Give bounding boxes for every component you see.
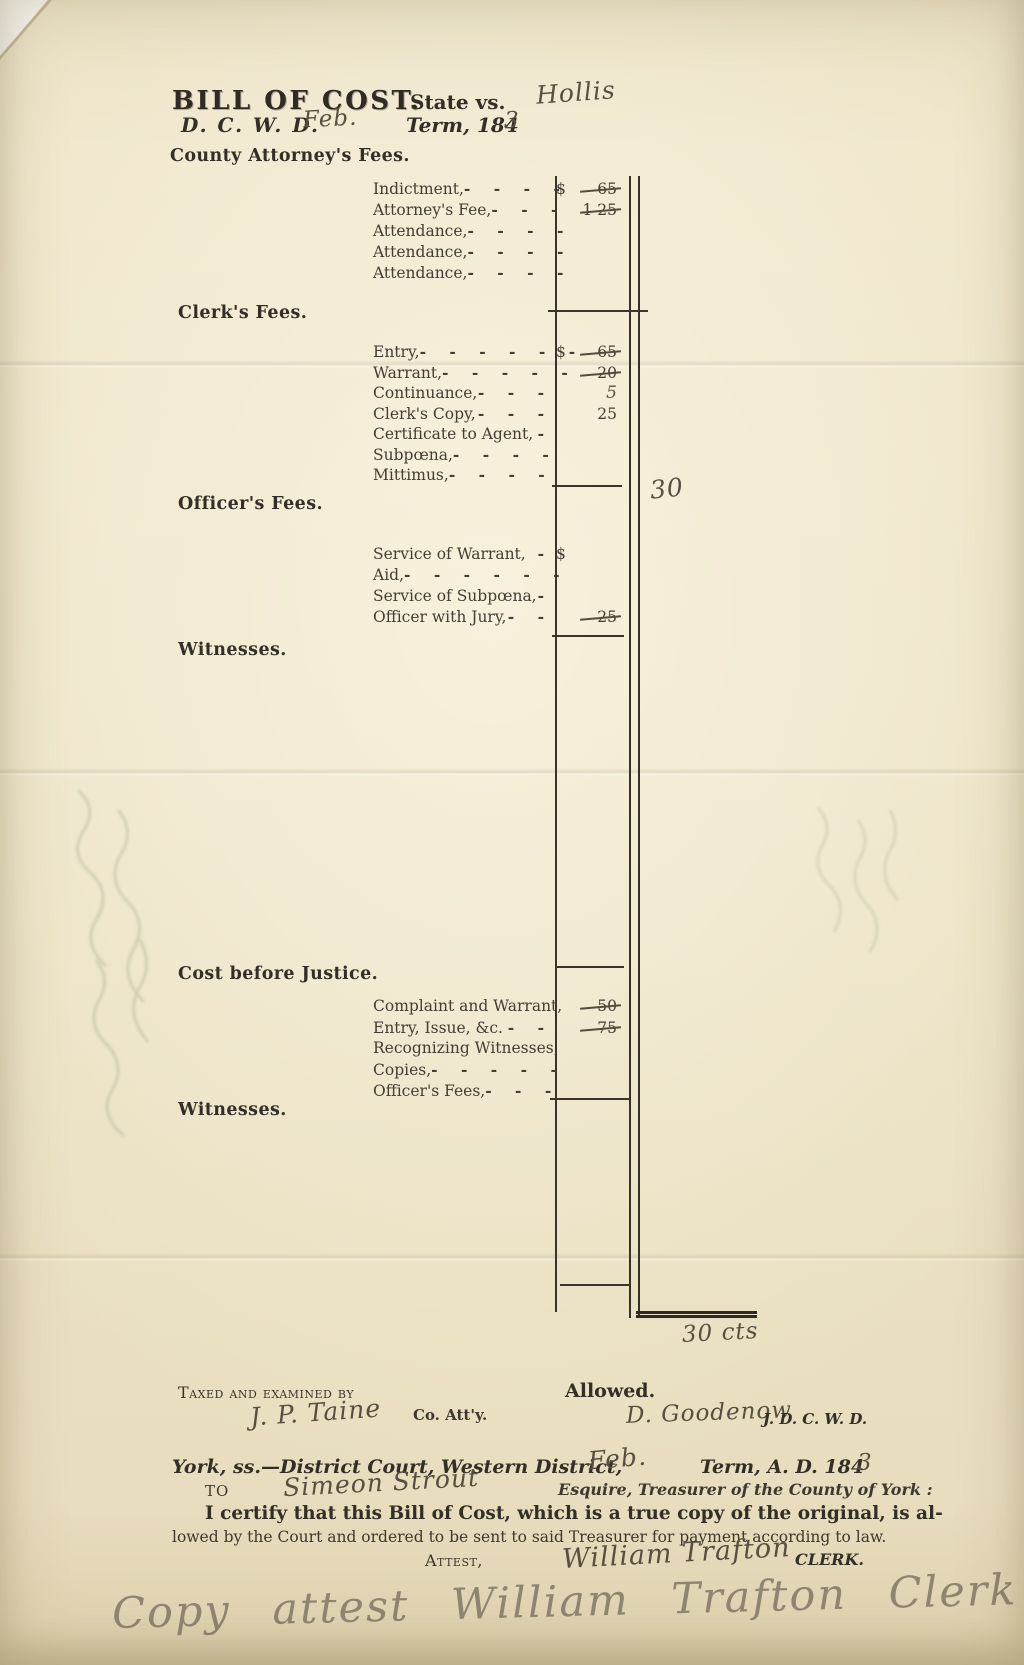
fee-label: Attorney's Fee, xyxy=(373,201,491,219)
dash-leader: - xyxy=(538,424,553,443)
fee-label: Service of Warrant, xyxy=(373,545,526,563)
paper-corner-cutoff xyxy=(0,0,48,56)
dash-leader: - - - xyxy=(478,383,553,402)
fee-label: Service of Subpœna, xyxy=(373,587,537,605)
fee-label: Continuance, xyxy=(373,384,477,402)
fee-row-attendance: Attendance,- - - - xyxy=(373,221,623,241)
county-attorney-title: Co. Att'y. xyxy=(413,1406,487,1424)
handwritten-total-30cts: 30 cts xyxy=(681,1318,759,1348)
handwritten-cert-term-month: Feb. xyxy=(587,1441,648,1475)
fee-label: Indictment, xyxy=(373,180,464,198)
fee-label: Copies, xyxy=(373,1061,431,1079)
fee-row-officer-with-jury: Officer with Jury,- - 25 xyxy=(373,607,623,627)
section-heading-county-attorney: County Attorney's Fees. xyxy=(170,146,410,166)
treasurer-title-line: Esquire, Treasurer of the County of York… xyxy=(558,1480,932,1499)
document-title: BILL OF COST. xyxy=(172,86,422,116)
fee-amount-struck: 20 xyxy=(572,364,623,382)
dash-leader: - - - - xyxy=(449,465,554,484)
fee-row-continuance: Continuance,- - - 5 xyxy=(373,383,623,403)
fee-row-indictment: Indictment,- - - - $ 65 xyxy=(373,179,623,199)
attest-label: Attest, xyxy=(425,1551,483,1570)
dash-leader: - - - - - xyxy=(431,1060,566,1079)
section-heading-clerk: Clerk's Fees. xyxy=(178,303,307,323)
dash-leader: - xyxy=(538,586,553,605)
fee-row-certificate-agent: Certificate to Agent,- xyxy=(373,424,623,444)
fee-row-aid: Aid,- - - - - - xyxy=(373,565,623,585)
fee-amount-struck: 65 xyxy=(572,180,623,198)
ghost-ink-showthrough xyxy=(48,780,178,1150)
fee-amount-struck: 1 25 xyxy=(572,201,623,219)
dollar-sign: $ xyxy=(553,343,572,361)
ghost-ink-showthrough xyxy=(798,800,913,985)
fee-row-clerks-copy: Clerk's Copy,- - - 25 xyxy=(373,404,623,424)
section-heading-witnesses: Witnesses. xyxy=(178,1100,287,1120)
dash-leader: - - - - xyxy=(467,242,572,261)
fee-row-warrant: Warrant,- - - - - 20 xyxy=(373,363,623,383)
fee-label: Subpœna, xyxy=(373,446,453,464)
fee-label: Officer with Jury, xyxy=(373,608,506,626)
section-heading-cost-before-justice: Cost before Justice. xyxy=(178,964,378,984)
dash-leader: - - - - - xyxy=(442,363,577,382)
fee-amount-struck: 75 xyxy=(572,1019,623,1037)
dash-leader: - - - xyxy=(478,404,553,423)
section-total-rule xyxy=(560,1284,630,1286)
to-label: TO xyxy=(205,1482,229,1500)
fee-label: Attendance, xyxy=(373,243,467,261)
dash-leader: - - - - - - xyxy=(404,565,569,584)
dollar-sign: $ xyxy=(553,180,572,198)
section-total-rule xyxy=(548,310,648,312)
fee-label: Entry, xyxy=(373,343,420,361)
fee-label: Aid, xyxy=(373,566,404,584)
handwritten-fee-amount: 5 xyxy=(572,383,623,403)
certify-text-line-1: I certify that this Bill of Cost, which … xyxy=(205,1503,943,1524)
fee-label: Attendance, xyxy=(373,264,467,282)
section-total-rule xyxy=(556,966,624,968)
fee-label: Recognizing Witnesses, xyxy=(373,1039,559,1057)
dash-leader: - - - xyxy=(491,200,566,219)
fold-crease xyxy=(0,768,1024,777)
court-abbreviation: D. C. W. D. xyxy=(181,113,320,137)
dash-leader: - - xyxy=(508,1018,553,1037)
fee-row-attorneys-fee: Attorney's Fee,- - - 1 25 xyxy=(373,200,623,220)
term-label: Term, 184 xyxy=(406,113,519,137)
allowed-label: Allowed. xyxy=(565,1380,655,1402)
handwritten-term-year: 3 xyxy=(504,108,520,134)
dash-leader: - - - - xyxy=(467,221,572,240)
fee-label: Certificate to Agent, xyxy=(373,425,533,443)
fee-row-entry: Entry,- - - - - - $ 65 xyxy=(373,342,623,362)
fee-row-attendance: Attendance,- - - - xyxy=(373,263,623,283)
fee-label: Officer's Fees, xyxy=(373,1082,485,1100)
fee-row-recognizing-witnesses: Recognizing Witnesses, xyxy=(373,1039,623,1059)
section-heading-officer: Officer's Fees. xyxy=(178,494,323,514)
fee-label: Warrant, xyxy=(373,364,442,382)
section-total-rule xyxy=(552,635,624,637)
dash-leader: - xyxy=(538,544,553,563)
fee-row-complaint-warrant: Complaint and Warrant, 50 xyxy=(373,997,623,1017)
dash-leader: - - xyxy=(508,607,553,626)
fee-row-attendance: Attendance,- - - - xyxy=(373,242,623,262)
handwritten-copy-attest-note: Copy attest William Trafton Clerk xyxy=(111,1567,952,1639)
fee-amount: 25 xyxy=(572,405,623,423)
handwritten-term-month: Feb. xyxy=(302,105,358,134)
section-total-rule xyxy=(552,485,622,487)
scanned-bill-of-cost-document: BILL OF COST. State vs. Hollis D. C. W. … xyxy=(0,0,1024,1665)
dash-leader: - - - - xyxy=(453,445,558,464)
fee-amount-struck: 25 xyxy=(572,608,623,626)
fee-amount-struck: 65 xyxy=(572,343,623,361)
clerk-title-label: CLERK. xyxy=(795,1550,864,1569)
case-caption-label: State vs. xyxy=(410,90,505,114)
dollar-sign: $ xyxy=(553,545,572,563)
fee-row-entry-issue: Entry, Issue, &c.- - 75 xyxy=(373,1018,623,1038)
fee-label: Clerk's Copy, xyxy=(373,405,476,423)
fee-label: Attendance, xyxy=(373,222,467,240)
fee-row-service-warrant: Service of Warrant,- $ xyxy=(373,544,623,564)
fee-row-service-subpoena: Service of Subpœna,- xyxy=(373,586,623,606)
fee-row-subpoena: Subpœna,- - - - xyxy=(373,445,623,465)
dash-leader: - - - - xyxy=(467,263,572,282)
fee-label: Complaint and Warrant, xyxy=(373,997,562,1015)
fee-row-officers-fees: Officer's Fees,- - - xyxy=(373,1081,623,1101)
handwritten-cert-term-year: 3 xyxy=(857,1450,873,1476)
dash-leader: - - - xyxy=(485,1081,560,1100)
fee-label: Entry, Issue, &c. xyxy=(373,1019,503,1037)
fee-row-copies: Copies,- - - - - xyxy=(373,1060,623,1080)
cert-term-label: Term, A. D. 184 xyxy=(700,1456,864,1478)
fold-crease xyxy=(0,1253,1024,1262)
judge-title-abbreviation: J. D. C. W. D. xyxy=(763,1410,867,1428)
section-heading-witnesses: Witnesses. xyxy=(178,640,287,660)
fee-amount-struck: 50 xyxy=(572,997,623,1015)
fee-label: Mittimus, xyxy=(373,466,449,484)
handwritten-defendant: Hollis xyxy=(535,75,617,109)
fee-column-right-double-rule xyxy=(629,176,640,1318)
column-bottom-closing-rule xyxy=(636,1311,757,1318)
fee-row-mittimus: Mittimus,- - - - xyxy=(373,465,623,485)
handwritten-margin-total-30: 30 xyxy=(649,472,686,504)
